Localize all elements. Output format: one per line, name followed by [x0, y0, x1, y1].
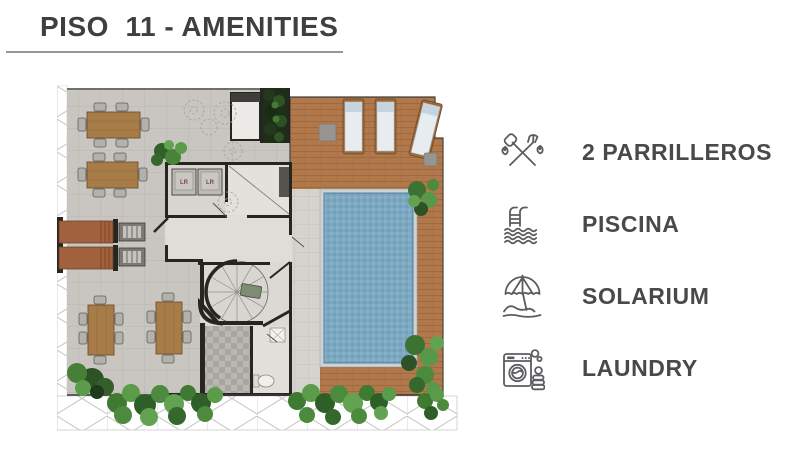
floor-plan-graphic: LR LR	[57, 85, 460, 433]
legend-item-laundry: LAUNDRY	[498, 345, 772, 391]
floor-plan: LR LR	[57, 85, 460, 433]
top-planter	[263, 88, 287, 143]
legend-item-parrilleros: 2 PARRILLEROS	[498, 129, 772, 175]
page-title: PISO 11 - AMENITIES	[40, 11, 338, 43]
machine-label: LR	[206, 180, 215, 186]
pool-walkway	[292, 189, 320, 395]
legend-label: PISCINA	[582, 211, 680, 238]
amenities-slide: PISO 11 - AMENITIES	[0, 0, 797, 467]
pool	[320, 189, 417, 367]
washing-machine-icon	[498, 345, 546, 391]
legend-item-solarium: SOLARIUM	[498, 273, 772, 319]
legend-label: LAUNDRY	[582, 355, 698, 382]
amenities-legend: 2 PARRILLEROS PI	[498, 129, 772, 417]
beach-umbrella-icon	[498, 273, 546, 319]
legend-label: SOLARIUM	[582, 283, 709, 310]
legend-item-piscina: PISCINA	[498, 201, 772, 247]
pool-ladder-icon	[498, 201, 546, 247]
grill-tools-icon	[498, 129, 546, 175]
spiral-staircase	[206, 261, 268, 323]
machine-label: LR	[180, 180, 189, 186]
sun-loungers	[343, 99, 443, 160]
legend-label: 2 PARRILLEROS	[582, 139, 772, 166]
title-underline	[6, 51, 343, 53]
